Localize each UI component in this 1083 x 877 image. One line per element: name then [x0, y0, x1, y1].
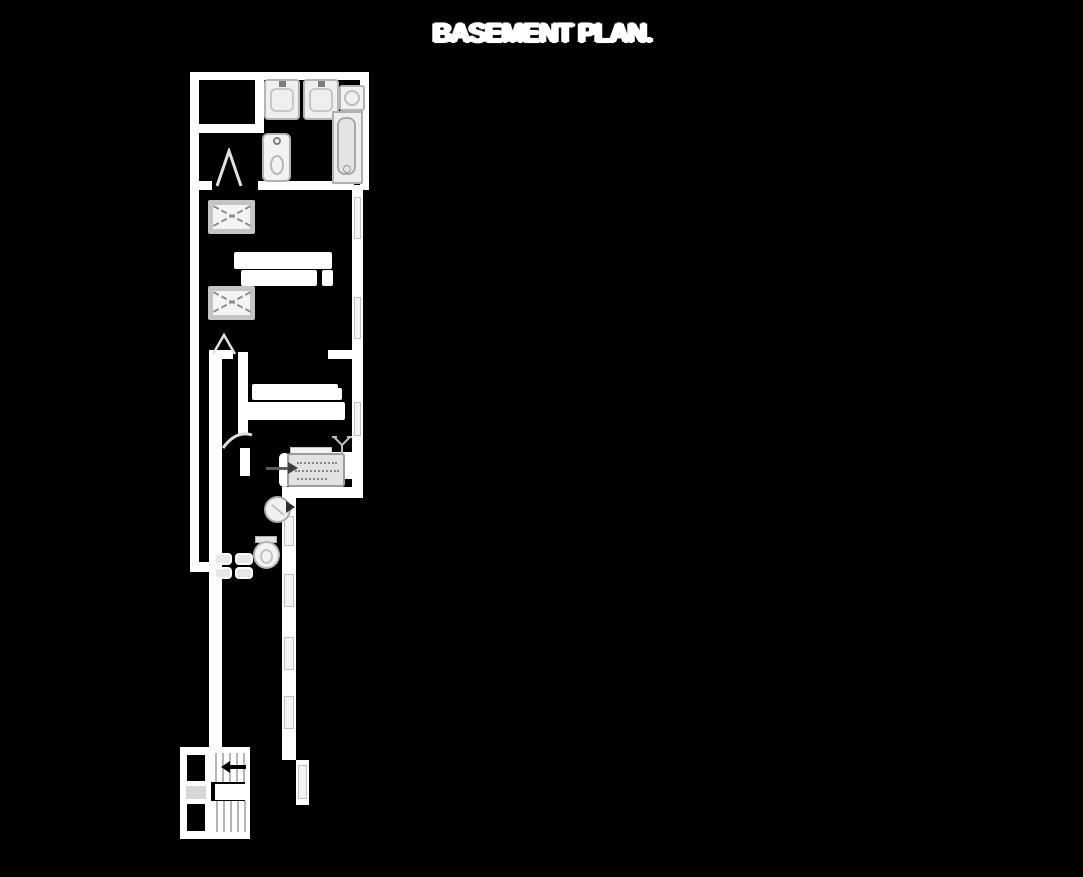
label-line: [252, 384, 338, 400]
wall-bedroom-divider-right: [328, 350, 354, 359]
label-line: [243, 402, 345, 420]
window-3: [354, 402, 361, 436]
equipment-text-row: [295, 470, 339, 472]
label-line: [241, 270, 317, 286]
door-swing-1: [214, 148, 244, 188]
label-line: [322, 270, 333, 286]
wall-closet-divider-h: [190, 124, 264, 133]
vanity-sink-left: [264, 79, 300, 120]
wall-bath-divider-left: [190, 181, 212, 190]
sink-basin: [309, 88, 333, 112]
wall-bottom-right: [287, 487, 363, 498]
sink-cell: [214, 567, 232, 579]
sink-faucet: [279, 81, 286, 87]
window-2: [354, 297, 361, 339]
equipment-text-row: [297, 478, 327, 480]
washer-drum: [344, 90, 360, 106]
stair-direction-arrowhead: [221, 761, 230, 773]
staircase-lower-run: [211, 801, 247, 832]
fan-blade-line: [271, 504, 285, 516]
staircase-landing: [215, 784, 248, 800]
equipment-text-row: [297, 462, 337, 464]
door-swing-3: [222, 429, 254, 449]
label-line: [234, 252, 332, 269]
sink-cell: [235, 567, 253, 579]
leader-arrowhead: [288, 462, 298, 474]
valve-symbol: [331, 435, 353, 454]
sink-cell: [214, 553, 232, 565]
bed-x-fixture-1: [208, 200, 255, 234]
fan-arrowhead: [286, 501, 295, 513]
stair-direction-arrow-line: [229, 765, 246, 769]
door-swing-icon: [214, 148, 244, 188]
bathtub-fixture: [332, 111, 363, 184]
door-swing-icon: [222, 429, 254, 449]
wall-stair-bottom: [180, 831, 250, 839]
toilet-bowl-inner: [260, 549, 273, 564]
window-5: [284, 516, 294, 546]
storage-shelf-divider-2: [183, 799, 207, 804]
leader-line: [266, 467, 290, 470]
washer-fixture: [339, 85, 365, 111]
window-7: [284, 637, 294, 670]
sink-faucet: [318, 81, 325, 87]
wall-interior-v2: [240, 448, 250, 476]
label-line: [330, 388, 342, 400]
sink-cell: [235, 553, 253, 565]
floor-plan-page: BASEMENT PLAN.: [0, 0, 1083, 877]
bathtub-drain: [343, 165, 351, 173]
floor-plan: [0, 0, 1083, 877]
door-swing-2: [211, 333, 237, 355]
window-8: [284, 696, 294, 729]
window-1: [354, 197, 361, 239]
window-9: [298, 765, 307, 799]
bed-x-fixture-2: [208, 286, 255, 320]
door-swing-icon: [211, 333, 237, 355]
toilet-lower: [253, 541, 280, 569]
wall-interior-v1: [238, 352, 248, 434]
wall-corner-bottom-left: [190, 562, 216, 572]
window-6: [284, 574, 294, 607]
toilet-bowl: [270, 155, 284, 175]
wall-closet-divider-v: [255, 79, 264, 129]
valve-y-icon: [331, 435, 353, 454]
toilet-upper: [262, 133, 291, 182]
wall-outer-left: [190, 72, 199, 572]
storage-shelf-fill: [186, 786, 206, 799]
toilet-valve: [273, 137, 281, 145]
sink-basin: [270, 88, 294, 112]
double-laundry-sink: [214, 553, 255, 580]
